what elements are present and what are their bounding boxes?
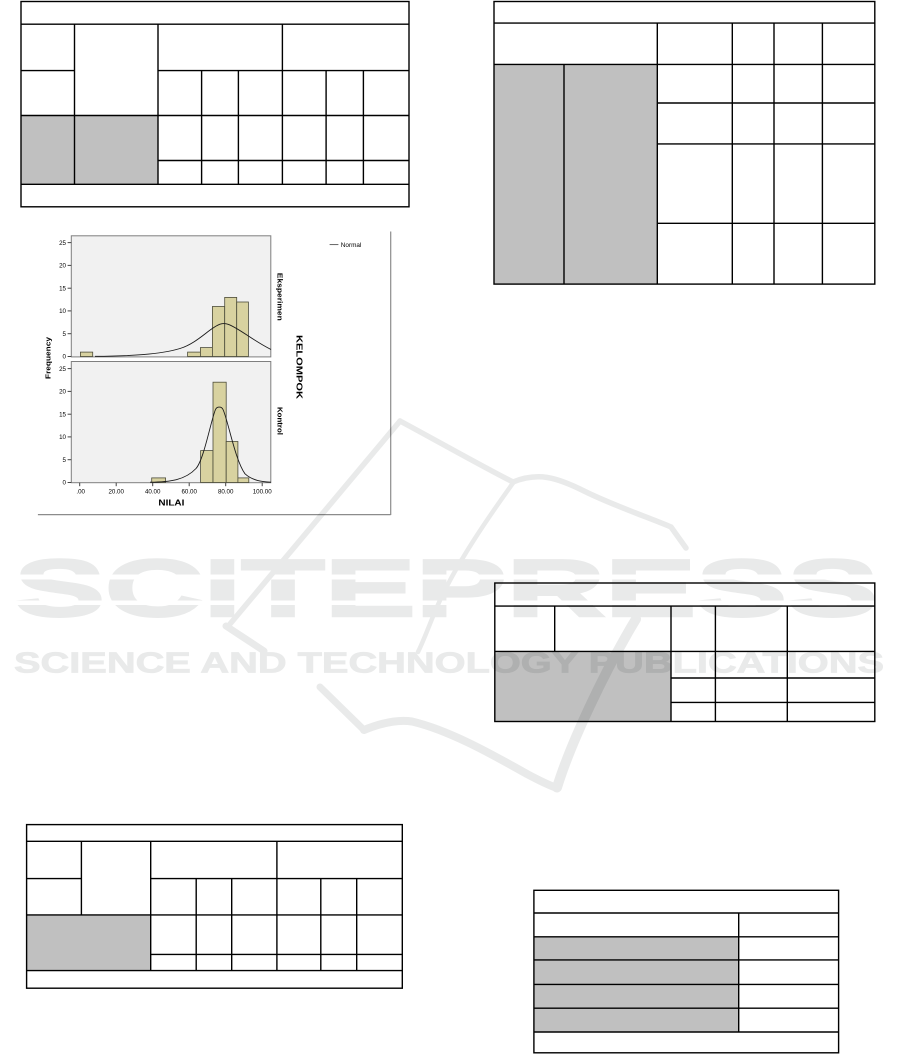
svg-text:15: 15 (59, 411, 66, 418)
svg-text:0: 0 (63, 480, 67, 487)
svg-text:60.00: 60.00 (181, 489, 197, 496)
svg-text:Normal: Normal (341, 242, 362, 249)
svg-text:10: 10 (59, 308, 66, 315)
svg-text:20: 20 (59, 263, 66, 270)
svg-text:15: 15 (59, 285, 66, 292)
svg-text:KELOMPOK: KELOMPOK (295, 335, 304, 400)
svg-text:80.00: 80.00 (218, 489, 234, 496)
svg-text:10: 10 (59, 434, 66, 441)
svg-text:Eksperimen: Eksperimen (276, 273, 285, 322)
svg-text:NILAI: NILAI (158, 499, 184, 508)
svg-text:25: 25 (59, 240, 66, 247)
svg-text:0: 0 (63, 354, 67, 361)
svg-text:.00: .00 (76, 489, 85, 496)
svg-text:100.00: 100.00 (253, 489, 272, 496)
svg-text:Kontrol: Kontrol (276, 407, 285, 435)
svg-text:Frequency: Frequency (44, 336, 53, 379)
svg-text:5: 5 (63, 331, 67, 338)
svg-text:SCIENCE AND TECHNOLOGY PUBLICA: SCIENCE AND TECHNOLOGY PUBLICATIONS (14, 648, 884, 680)
svg-text:40.00: 40.00 (145, 489, 161, 496)
svg-text:25: 25 (59, 366, 66, 373)
svg-text:20.00: 20.00 (108, 489, 124, 496)
svg-text:20: 20 (59, 389, 66, 396)
svg-text:5: 5 (63, 457, 67, 464)
